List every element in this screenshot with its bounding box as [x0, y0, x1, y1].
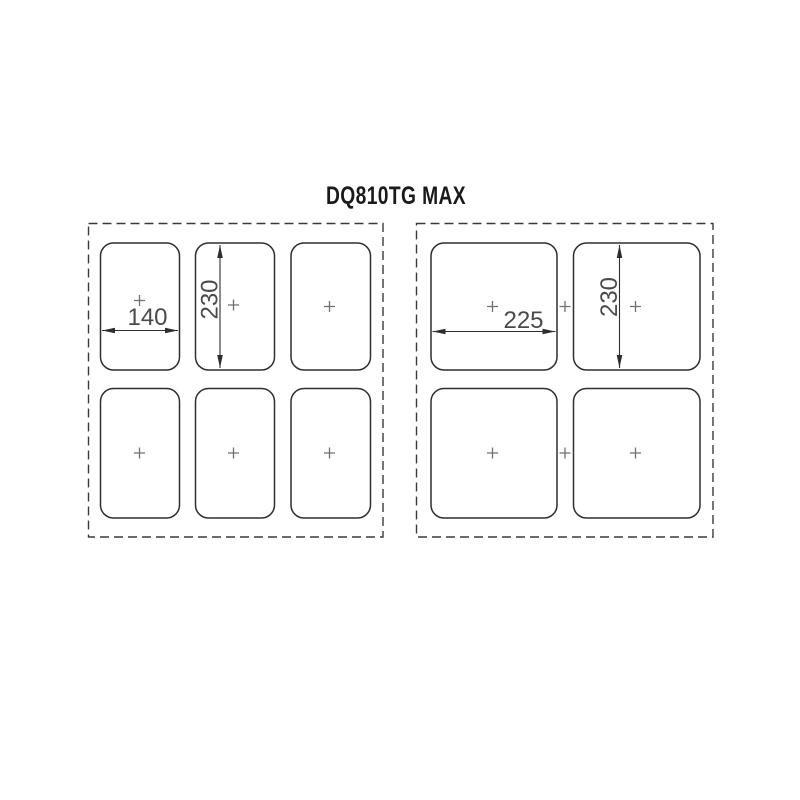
dimension-value: 230 [596, 277, 623, 317]
hob-cutout-drawing: DQ810TG MAX 140 [0, 0, 800, 800]
drawing-title: DQ810TG MAX [326, 182, 466, 210]
center-cross-mark [560, 448, 571, 459]
dimension-value: 230 [197, 279, 224, 319]
right-cutout-panel: 225 230 [417, 224, 714, 538]
left-cutout-panel: 140 230 [89, 224, 384, 538]
center-cross-mark [560, 301, 571, 312]
technical-drawing-page: DQ810TG MAX 140 [0, 0, 800, 800]
dimension-value: 140 [127, 304, 167, 331]
dimension-value: 225 [503, 307, 543, 334]
